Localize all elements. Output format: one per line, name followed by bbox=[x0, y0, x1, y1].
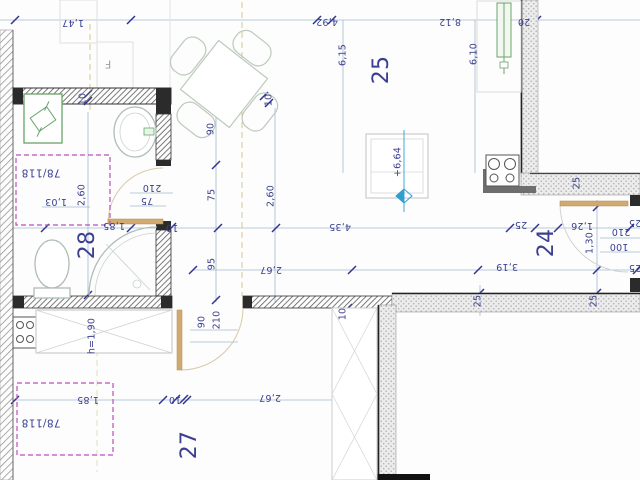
shaft-above-bath bbox=[60, 0, 170, 88]
bath-bottom-wall-block-right bbox=[161, 296, 172, 308]
door24-stub-upper bbox=[630, 195, 640, 206]
bath-door bbox=[108, 168, 163, 224]
bottom-wall-vertical bbox=[378, 305, 396, 480]
sink bbox=[114, 107, 156, 157]
floor-plan-canvas: 1,474,928,12206,156,1025F10901078/1181,0… bbox=[0, 0, 640, 480]
kitchen-counter-bar bbox=[483, 186, 536, 193]
void-box-1 bbox=[60, 0, 97, 43]
bath-right-wall-lower bbox=[156, 230, 171, 296]
mid-wall-cap bbox=[243, 296, 252, 308]
bath-top-wall-endblock-left bbox=[13, 88, 23, 104]
ref-box-lower bbox=[17, 383, 113, 455]
washing-machine bbox=[24, 94, 62, 143]
small-stove bbox=[13, 317, 37, 348]
bath-right-wall-cap-1 bbox=[156, 160, 171, 166]
room24-door bbox=[560, 201, 628, 272]
left-wall bbox=[0, 30, 13, 480]
kitchen-stove bbox=[486, 155, 519, 186]
bath-bottom-wall-block-left bbox=[13, 296, 24, 308]
void-box-2 bbox=[97, 42, 133, 88]
room24-top-wall bbox=[521, 173, 640, 195]
right-wall-vertical bbox=[521, 0, 538, 174]
bottom-wall-horizontal bbox=[392, 293, 640, 312]
bath-corner-block bbox=[156, 88, 171, 114]
sideboard bbox=[366, 134, 428, 198]
room27-door bbox=[177, 308, 243, 370]
toilet bbox=[34, 240, 70, 298]
shower bbox=[89, 227, 157, 295]
mid-wall bbox=[243, 296, 392, 308]
ref-box-upper bbox=[16, 155, 110, 225]
radiator bbox=[477, 1, 521, 92]
shaft bbox=[332, 308, 377, 480]
bathroom-fixtures bbox=[24, 94, 157, 298]
bath-right-wall-upper bbox=[156, 114, 171, 160]
door24-stub-lower bbox=[630, 278, 640, 292]
walls bbox=[0, 0, 640, 480]
dining-table bbox=[180, 40, 267, 127]
wardrobe bbox=[36, 310, 172, 353]
floor-plan-drawing bbox=[0, 0, 640, 480]
